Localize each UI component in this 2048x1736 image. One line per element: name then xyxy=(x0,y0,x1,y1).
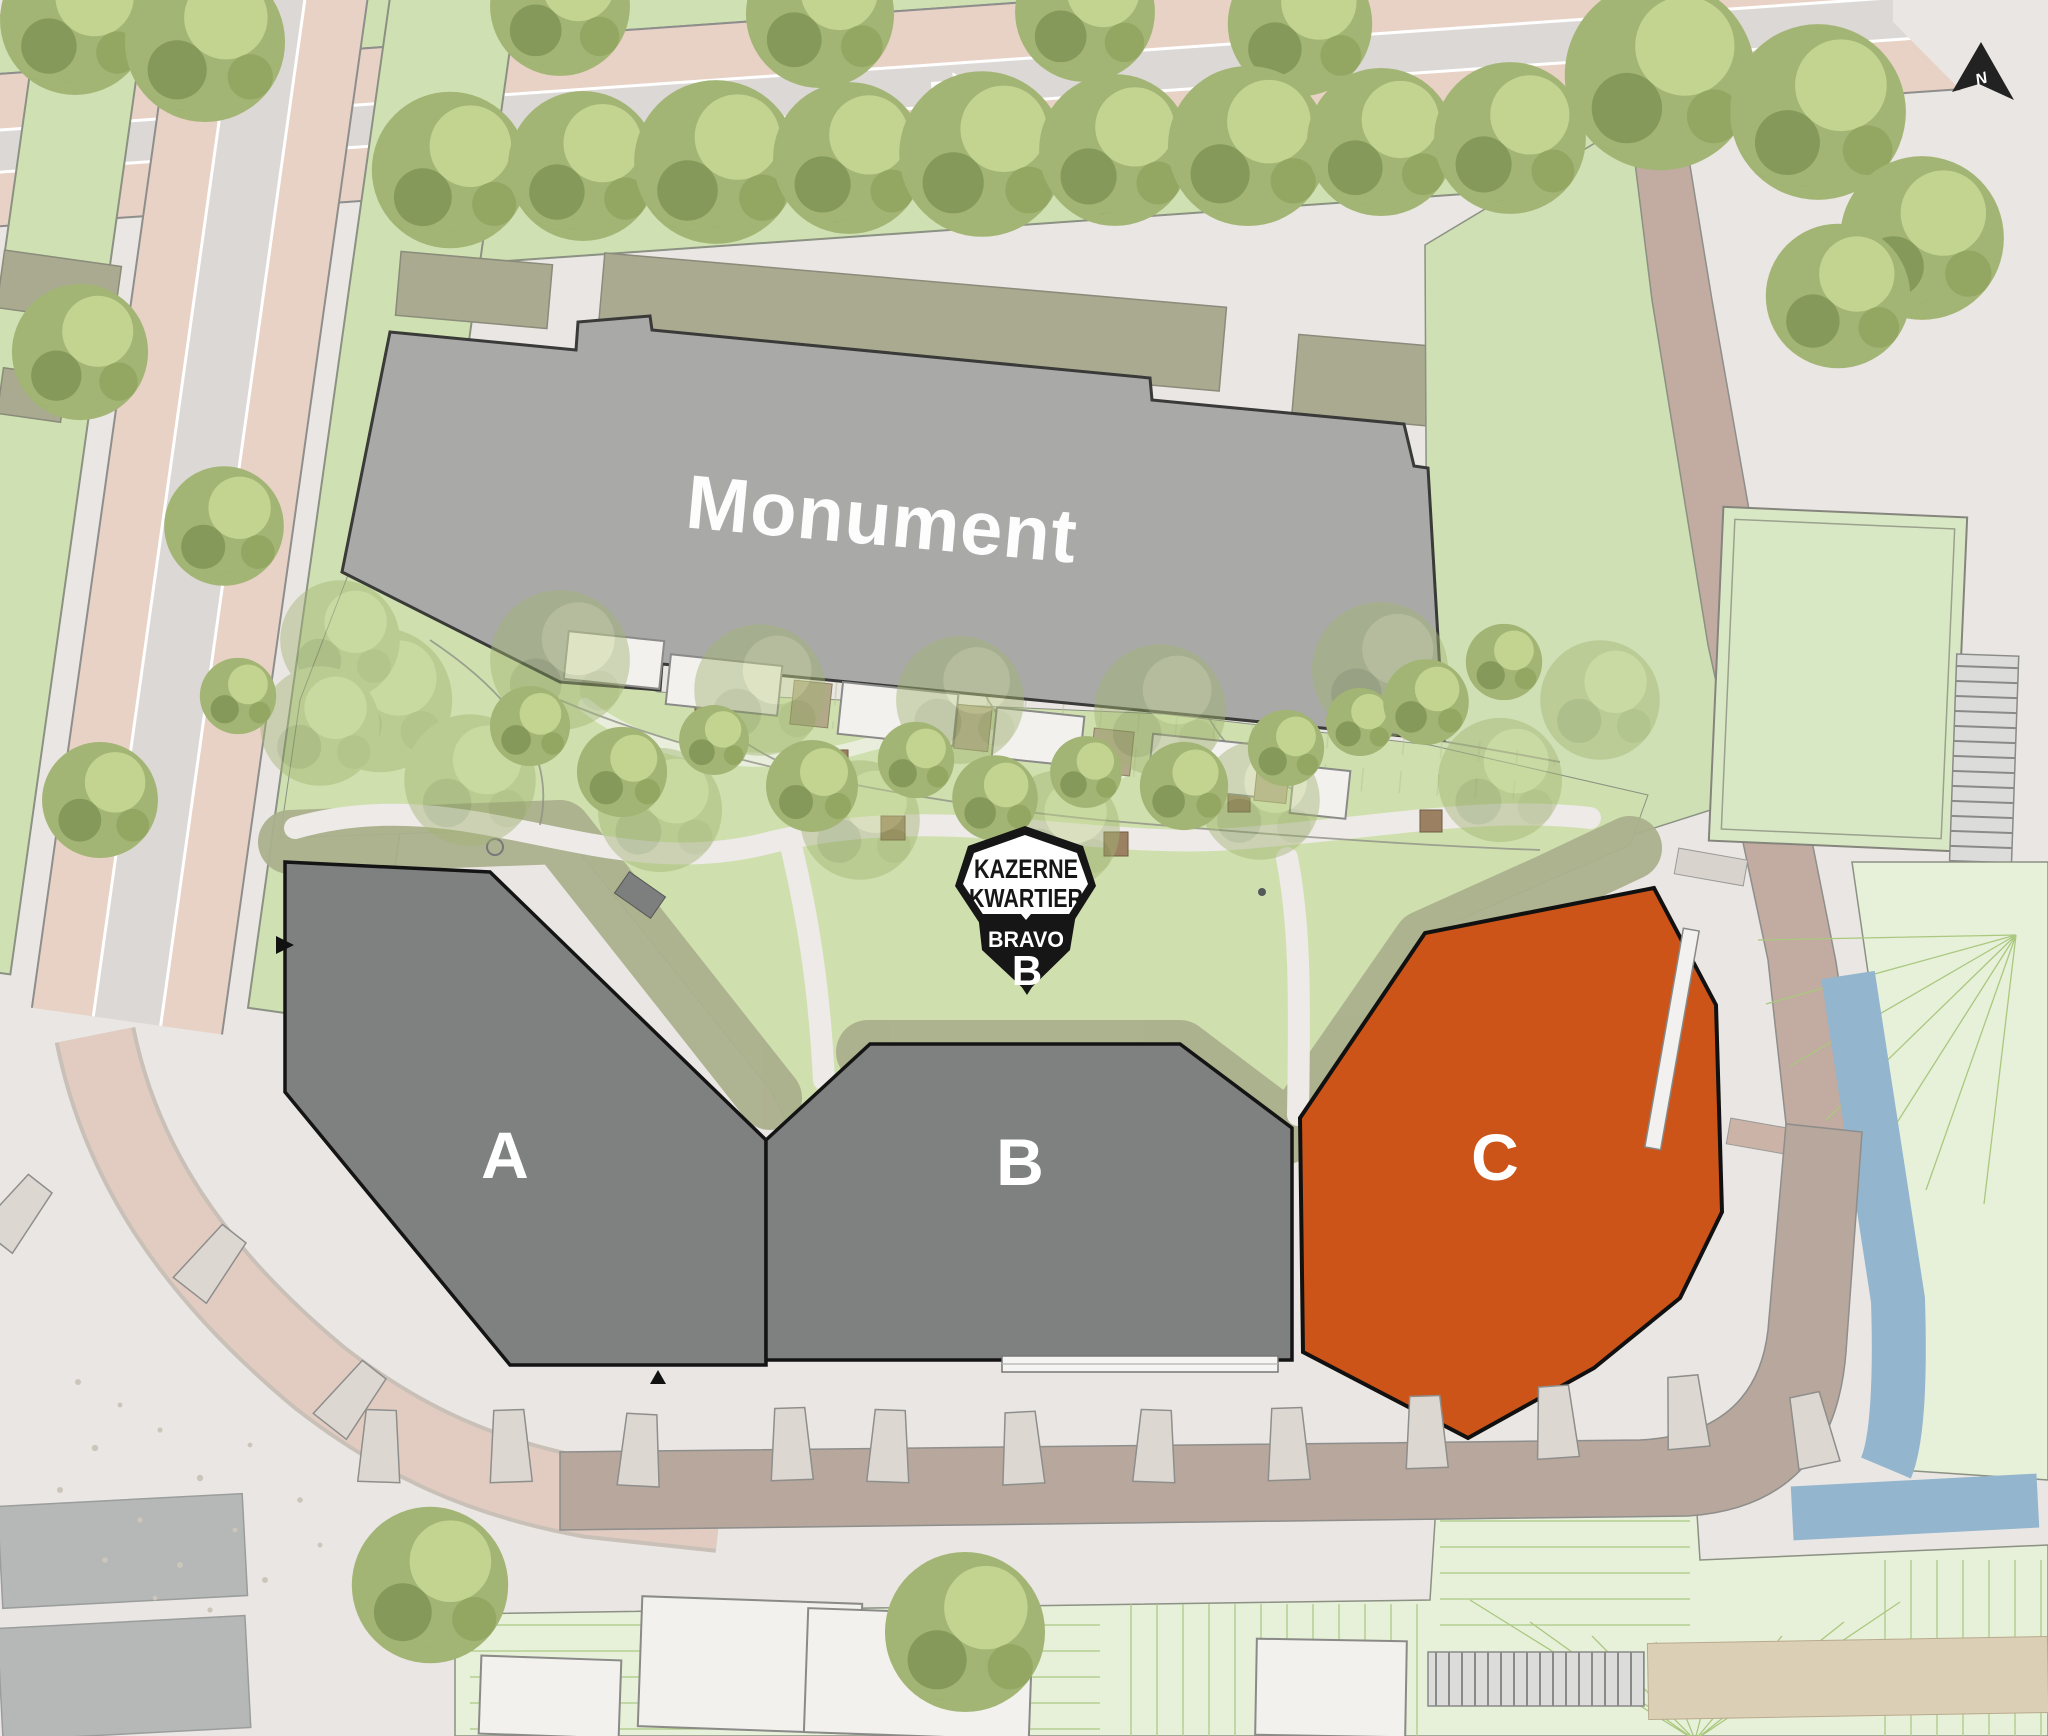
stairs-bottom xyxy=(1428,1652,1644,1706)
park-square xyxy=(1709,507,1967,851)
logo-letter-b: B xyxy=(1012,947,1042,994)
logo-line2: KWARTIER xyxy=(969,883,1083,913)
building-c-label: C xyxy=(1471,1120,1519,1194)
building-a-label: A xyxy=(481,1118,529,1192)
tan-path xyxy=(1647,1637,2048,1720)
building-b[interactable] xyxy=(766,1044,1292,1360)
logo-line1: KAZERNE xyxy=(974,854,1078,884)
site-plan-map: Monument A B C xyxy=(0,0,2048,1736)
building-b-label: B xyxy=(996,1125,1044,1199)
lawn-lines-small xyxy=(1440,1510,1690,1640)
